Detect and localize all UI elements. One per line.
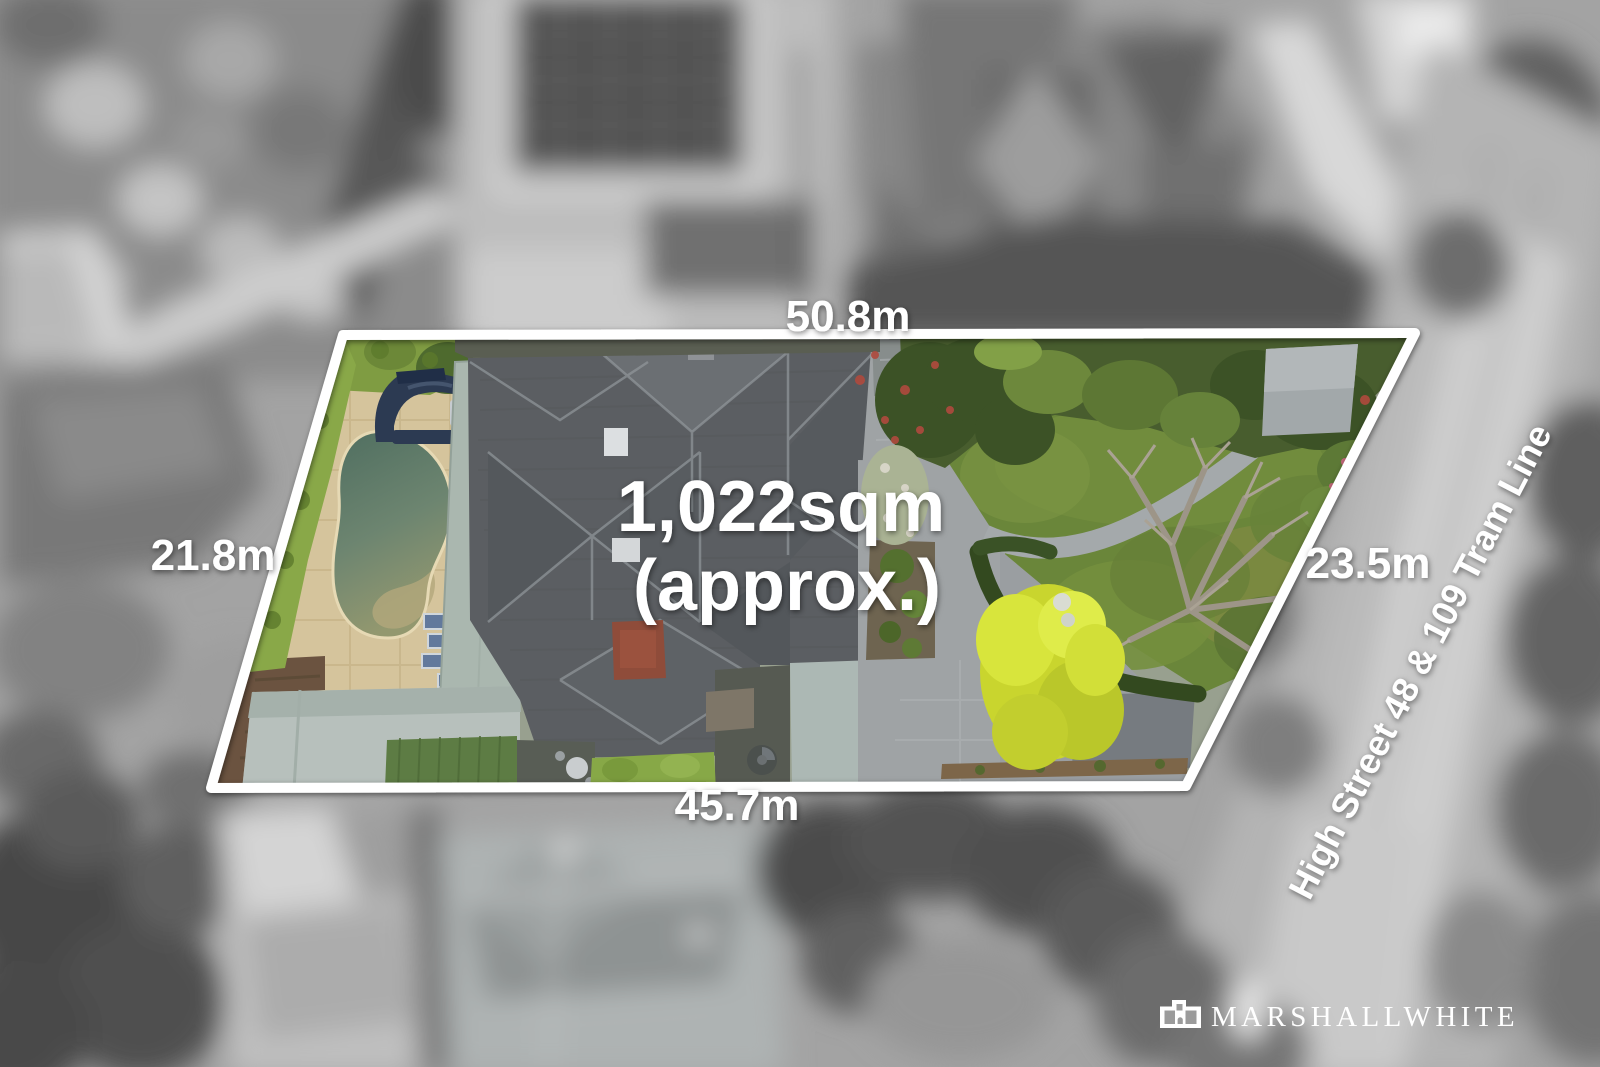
- svg-text:50.8m: 50.8m: [786, 292, 911, 341]
- svg-text:1,022sqm: 1,022sqm: [617, 467, 945, 547]
- svg-text:MARSHALLWHITE: MARSHALLWHITE: [1211, 1001, 1519, 1033]
- svg-text:21.8m: 21.8m: [151, 531, 276, 580]
- svg-text:23.5m: 23.5m: [1306, 539, 1431, 588]
- svg-text:(approx.): (approx.): [633, 546, 941, 626]
- svg-text:45.7m: 45.7m: [675, 781, 800, 830]
